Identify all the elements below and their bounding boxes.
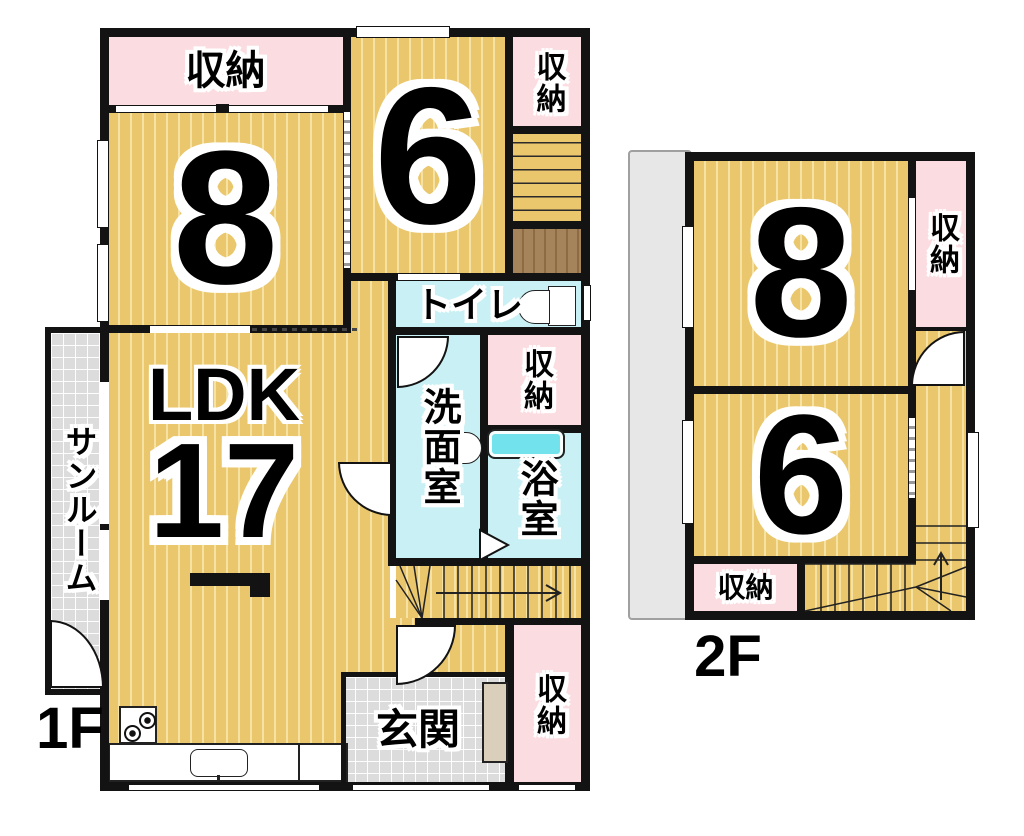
f1-storage-bottomright-label: 収納: [514, 630, 582, 780]
f1-bath-label: 浴室: [488, 440, 582, 558]
window: [967, 432, 979, 528]
window: [682, 226, 694, 328]
wall: [581, 28, 590, 791]
stairs-detail: [396, 566, 582, 618]
closet-door: [909, 418, 915, 498]
wall: [415, 618, 590, 625]
balcony-strip: [628, 150, 692, 620]
burner-icon: [124, 725, 141, 742]
sunroom-wall: [45, 327, 108, 333]
wall: [685, 611, 975, 620]
burner-icon: [139, 712, 156, 729]
f1-ldk-size-label: 17: [108, 420, 390, 560]
window: [583, 285, 591, 321]
kitchen-sink-icon: [190, 749, 248, 777]
f1-closet-brown: [513, 225, 582, 277]
counter-divider: [298, 743, 300, 782]
floor1-title: 1F: [34, 696, 106, 762]
floor2-title: 2F: [686, 624, 770, 690]
wall: [966, 152, 975, 620]
f1-storage-topright-label: 収納: [513, 36, 582, 130]
f1-room6-label: 6: [351, 36, 505, 277]
partition-dashed: [344, 112, 350, 268]
window: [128, 784, 320, 791]
sunroom-wall: [45, 689, 108, 695]
f2-storage-right-label: 収納: [916, 161, 966, 327]
f1-toilet-label: トイレ: [396, 281, 542, 329]
wall: [505, 28, 513, 281]
storage-door: [909, 198, 915, 290]
wall: [505, 221, 590, 229]
f1-storage-mid-label: 収納: [488, 335, 582, 425]
window: [682, 420, 694, 524]
f1-storage-top-label: 収納: [108, 36, 343, 105]
storage-door: [518, 784, 576, 791]
f1-room8-label: 8: [108, 107, 343, 329]
f2-room8-label: 8: [694, 161, 908, 386]
stove-icon: [119, 706, 157, 744]
entrance-door: [352, 784, 490, 791]
wall: [685, 152, 975, 161]
f1-washroom-label: 洗面室: [396, 335, 480, 558]
kitchen-peninsula-end: [250, 580, 270, 597]
f2-room6-label: 6: [694, 394, 908, 556]
f1-upper-stairs: [513, 130, 582, 225]
f2-storage-bottom-label: 収納: [694, 564, 797, 611]
f1-genkan-label: 玄関: [343, 677, 493, 782]
toilet-icon: [548, 286, 576, 326]
floor-plan: 収納 8 6 収納 トイレ 洗面室 収納 浴室 LDK 17 サンルーム 玄関 …: [0, 0, 1024, 836]
f1-sunroom-label: サンルーム: [51, 340, 108, 680]
